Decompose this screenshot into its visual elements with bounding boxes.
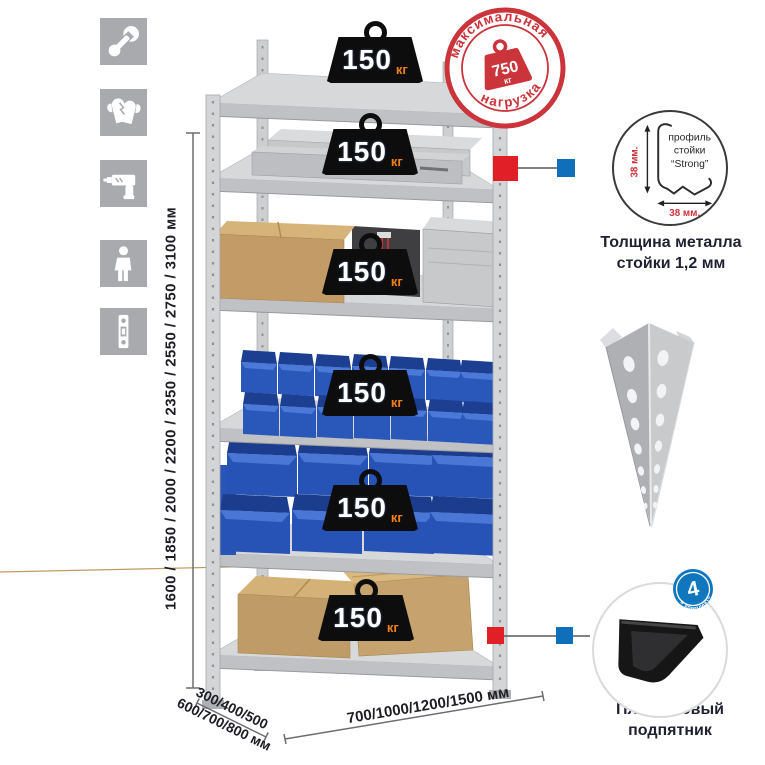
callout-connector-top [493,156,575,181]
profile-label-3: “Strong” [671,159,709,170]
profile-label-1: профиль [668,131,711,143]
red-marker-top [493,156,518,181]
badge-value: 150 [337,379,387,407]
badge-unit: кг [396,63,408,76]
profile-caption-line2: стойки 1,2 мм [596,254,746,275]
weight-badge-3: 150кг [322,233,418,295]
blue-marker-bottom [556,627,573,644]
profile-dim-horizontal: 38 мм. [669,208,700,219]
profile-label-2: стойки [674,145,706,156]
weight-badge-5: 150кг [322,469,418,531]
badge-unit: кг [391,396,403,409]
badge-value: 150 [337,494,387,522]
profile-dim-vertical: 38 мм. [630,146,641,177]
badge-value: 150 [337,258,387,286]
red-marker-bottom [487,627,504,644]
horizontal-dim-arrow [657,200,712,206]
quantity-badge: 4 в комплекте [667,563,719,615]
weight-badge-1: 150кг [327,21,423,83]
vertical-dim-arrow [644,125,650,194]
profile-callout: 38 мм. 38 мм. профиль стойки “Strong” [612,110,728,226]
badge-unit: кг [391,511,403,524]
badge-value: 150 [342,46,392,74]
profile-caption-line1: Толщина металла [596,233,746,254]
callout-connector-bottom [487,627,590,644]
badge-value: 150 [337,138,387,166]
weight-badge-6: 150кг [318,579,414,641]
corner-post-image [600,323,695,527]
rack-infographic: 150кг 150кг 150кг 150кг 150кг 150кг макс… [0,0,765,765]
height-dimension-label: 1600 / 1850 / 2000 / 2200 / 2350 / 2550 … [163,109,180,709]
profile-caption: Толщина металла стойки 1,2 мм [596,233,746,275]
badge-unit: кг [387,621,399,634]
blue-marker-top [557,159,575,177]
weight-badge-4: 150кг [322,354,418,416]
foot-caption-line2: подпятник [596,721,744,742]
badge-unit: кг [391,155,403,168]
height-dimension-line [186,133,200,688]
weight-badge-2: 150кг [322,113,418,175]
badge-value: 150 [333,604,383,632]
badge-unit: кг [391,275,403,288]
